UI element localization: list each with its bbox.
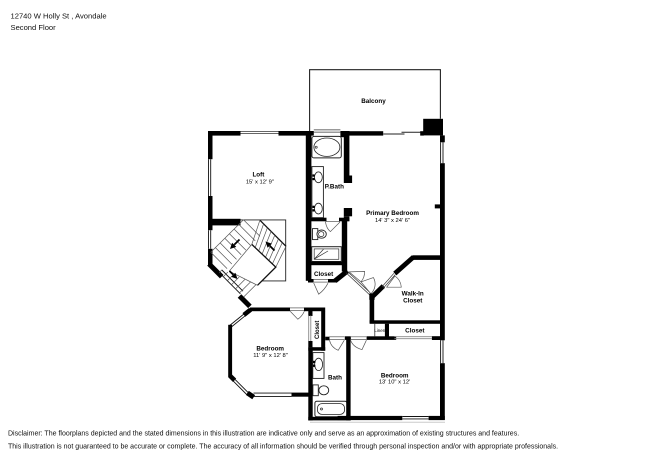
svg-text:11' 9" x 12' 8": 11' 9" x 12' 8" [253, 353, 288, 359]
svg-text:Primary Bedroom: Primary Bedroom [366, 210, 419, 217]
svg-text:15' x 12' 9": 15' x 12' 9" [246, 180, 274, 186]
svg-text:Disclaimer: The floorplans dep: Disclaimer: The floorplans depicted and … [8, 430, 519, 437]
svg-text:Bedroom: Bedroom [256, 346, 284, 353]
svg-text:Bath: Bath [328, 375, 342, 382]
svg-text:Closet: Closet [315, 321, 321, 339]
svg-text:Second Floor: Second Floor [11, 23, 57, 32]
svg-text:Balcony: Balcony [361, 98, 386, 105]
svg-text:12740 W Holly St , Avondale: 12740 W Holly St , Avondale [11, 11, 107, 20]
svg-text:14' 3" x 24' 6": 14' 3" x 24' 6" [375, 218, 410, 224]
svg-text:Loft: Loft [252, 171, 265, 178]
svg-text:P.Bath: P.Bath [325, 184, 344, 191]
svg-text:This illustration is not guara: This illustration is not guaranteed to b… [8, 443, 558, 450]
svg-text:Linen: Linen [374, 328, 386, 333]
svg-text:Closet: Closet [403, 297, 423, 304]
svg-text:13' 10" x 12': 13' 10" x 12' [379, 380, 410, 386]
svg-text:Closet: Closet [405, 328, 425, 335]
svg-text:Closet: Closet [314, 271, 334, 278]
